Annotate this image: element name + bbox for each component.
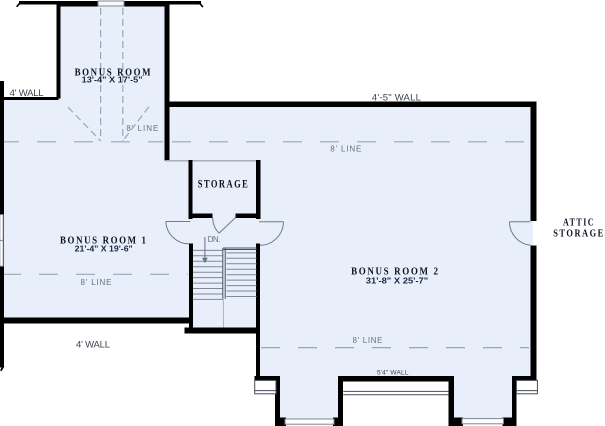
svg-text:5'4" WALL: 5'4" WALL (377, 370, 409, 377)
svg-text:4' WALL: 4' WALL (10, 88, 44, 99)
svg-text:13'-4" X 17'-5": 13'-4" X 17'-5" (82, 76, 143, 85)
svg-text:8' LINE: 8' LINE (81, 278, 112, 287)
svg-text:21'-4" X 19'-6": 21'-4" X 19'-6" (75, 245, 133, 254)
svg-text:STORAGE: STORAGE (553, 227, 605, 239)
svg-text:31'-8" X 25'-7": 31'-8" X 25'-7" (366, 277, 429, 286)
svg-text:8' LINE: 8' LINE (126, 124, 158, 133)
svg-text:STORAGE: STORAGE (198, 176, 250, 190)
svg-text:8' LINE: 8' LINE (330, 145, 361, 154)
svg-text:4'-5" WALL: 4'-5" WALL (372, 92, 421, 103)
svg-text:8' LINE: 8' LINE (353, 336, 383, 345)
svg-text:DN.: DN. (208, 235, 221, 244)
svg-text:4' WALL: 4' WALL (76, 339, 110, 350)
svg-text:BONUS ROOM 2: BONUS ROOM 2 (351, 265, 440, 277)
